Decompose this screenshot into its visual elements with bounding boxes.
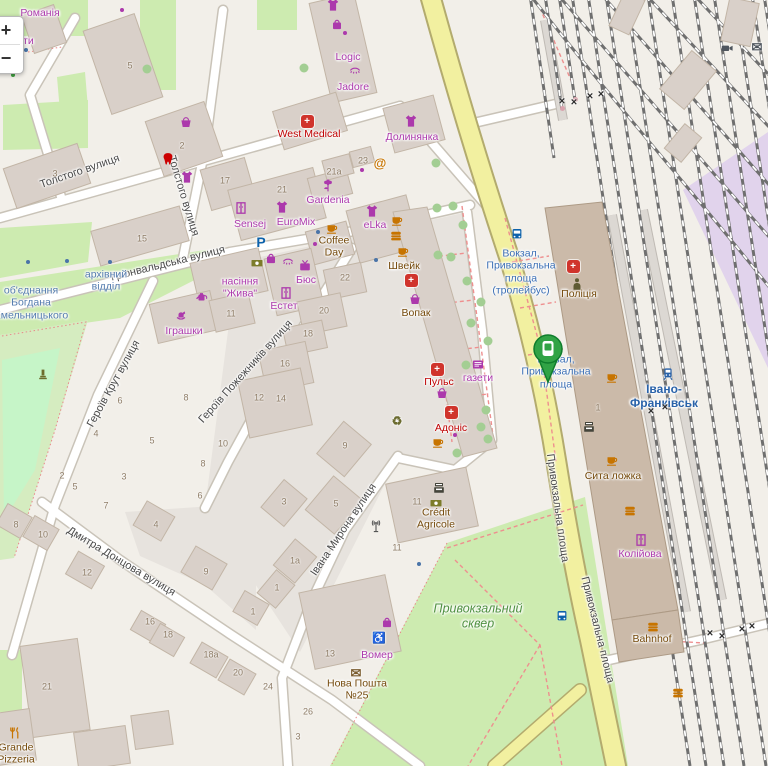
map-canvas[interactable]: Толстого вулицяТолстого вулицяГрюнвальдс… (0, 0, 768, 766)
zoom-control: + − (0, 16, 24, 74)
zoom-in-button[interactable]: + (0, 17, 23, 44)
selected-stop-marker[interactable] (526, 330, 570, 386)
zoom-out-button[interactable]: − (0, 45, 23, 72)
map-render-layer (0, 0, 768, 766)
